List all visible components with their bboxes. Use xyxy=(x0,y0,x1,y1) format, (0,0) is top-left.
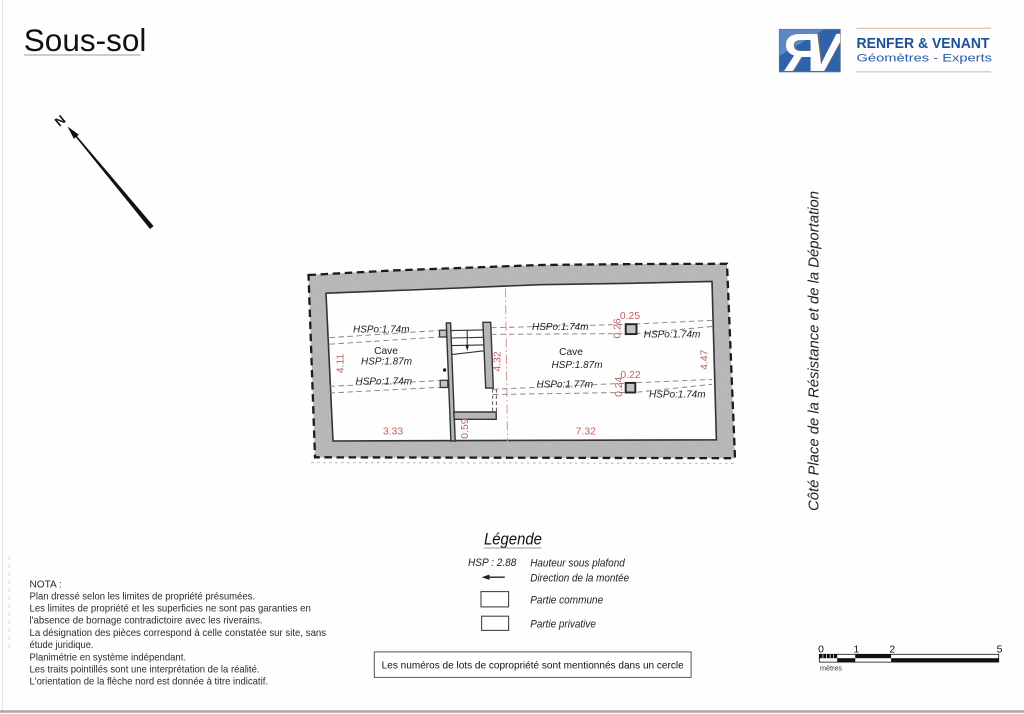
svg-text:Planimétrie en système indépen: Planimétrie en système indépendant. xyxy=(30,652,187,663)
svg-text:4.32: 4.32 xyxy=(493,351,504,371)
svg-text:étude juridique.: étude juridique. xyxy=(30,640,94,651)
svg-text:0.26: 0.26 xyxy=(613,318,624,338)
svg-text:HSPo:1.74m: HSPo:1.74m xyxy=(353,324,410,335)
svg-text:4.11: 4.11 xyxy=(336,354,347,374)
svg-text:0: 0 xyxy=(818,644,824,655)
svg-text:5: 5 xyxy=(997,644,1003,655)
svg-text:HSPo:1.74m: HSPo:1.74m xyxy=(532,322,589,333)
svg-text:3.33: 3.33 xyxy=(383,426,403,437)
svg-text:RENFER & VENANT: RENFER & VENANT xyxy=(857,35,991,52)
svg-text:Cave: Cave xyxy=(559,347,583,358)
svg-text:0.24: 0.24 xyxy=(614,376,625,396)
svg-text:HSPo:1.77m: HSPo:1.77m xyxy=(537,379,594,390)
svg-text:l'absence de bornage contradic: l'absence de bornage contradictoire avec… xyxy=(30,616,263,627)
svg-text:Les limites de propriété et le: Les limites de propriété et les superfic… xyxy=(30,604,311,615)
svg-text:HSP:1.87m: HSP:1.87m xyxy=(361,356,413,367)
svg-text:Partie commune: Partie commune xyxy=(530,595,603,607)
svg-text:Les traits pointillés sont une: Les traits pointillés sont une interprét… xyxy=(30,664,260,675)
svg-text:4.47: 4.47 xyxy=(700,349,711,369)
svg-text:Les numéros de lots de copropr: Les numéros de lots de copropriété sont … xyxy=(382,660,685,671)
svg-text:HSPo:1.74m: HSPo:1.74m xyxy=(356,377,413,388)
svg-text:HSPo:1.74m: HSPo:1.74m xyxy=(644,330,701,341)
svg-text:mètres: mètres xyxy=(820,664,842,673)
svg-text:Partie privative: Partie privative xyxy=(530,619,596,631)
svg-text:HSP : 2.88: HSP : 2.88 xyxy=(468,557,516,569)
svg-text:L'orientation de la flèche nor: L'orientation de la flèche nord est donn… xyxy=(30,676,269,687)
svg-text:0.59: 0.59 xyxy=(460,418,471,438)
svg-text:HSP:1.87m: HSP:1.87m xyxy=(552,360,604,371)
svg-text:Hauteur sous plafond: Hauteur sous plafond xyxy=(530,557,626,569)
svg-text:Géomètres - Experts: Géomètres - Experts xyxy=(857,53,993,65)
svg-text:1: 1 xyxy=(854,644,860,655)
svg-text:La désignation des pièces corr: La désignation des pièces correspond à c… xyxy=(30,628,327,639)
svg-text:NOTA :: NOTA : xyxy=(30,580,62,591)
svg-text:7.32: 7.32 xyxy=(576,427,596,438)
svg-text:Direction de la montée: Direction de la montée xyxy=(530,573,629,585)
svg-text:HSPo:1.74m: HSPo:1.74m xyxy=(649,389,706,400)
svg-text:Côté Place de la Résistance et: Côté Place de la Résistance et de la Dép… xyxy=(807,191,823,511)
svg-text:Légende: Légende xyxy=(484,530,542,549)
svg-text:Sous-sol: Sous-sol xyxy=(24,22,147,58)
svg-text:2: 2 xyxy=(889,644,895,655)
svg-text:Plan dressé selon les limites: Plan dressé selon les limites de proprié… xyxy=(30,592,256,603)
